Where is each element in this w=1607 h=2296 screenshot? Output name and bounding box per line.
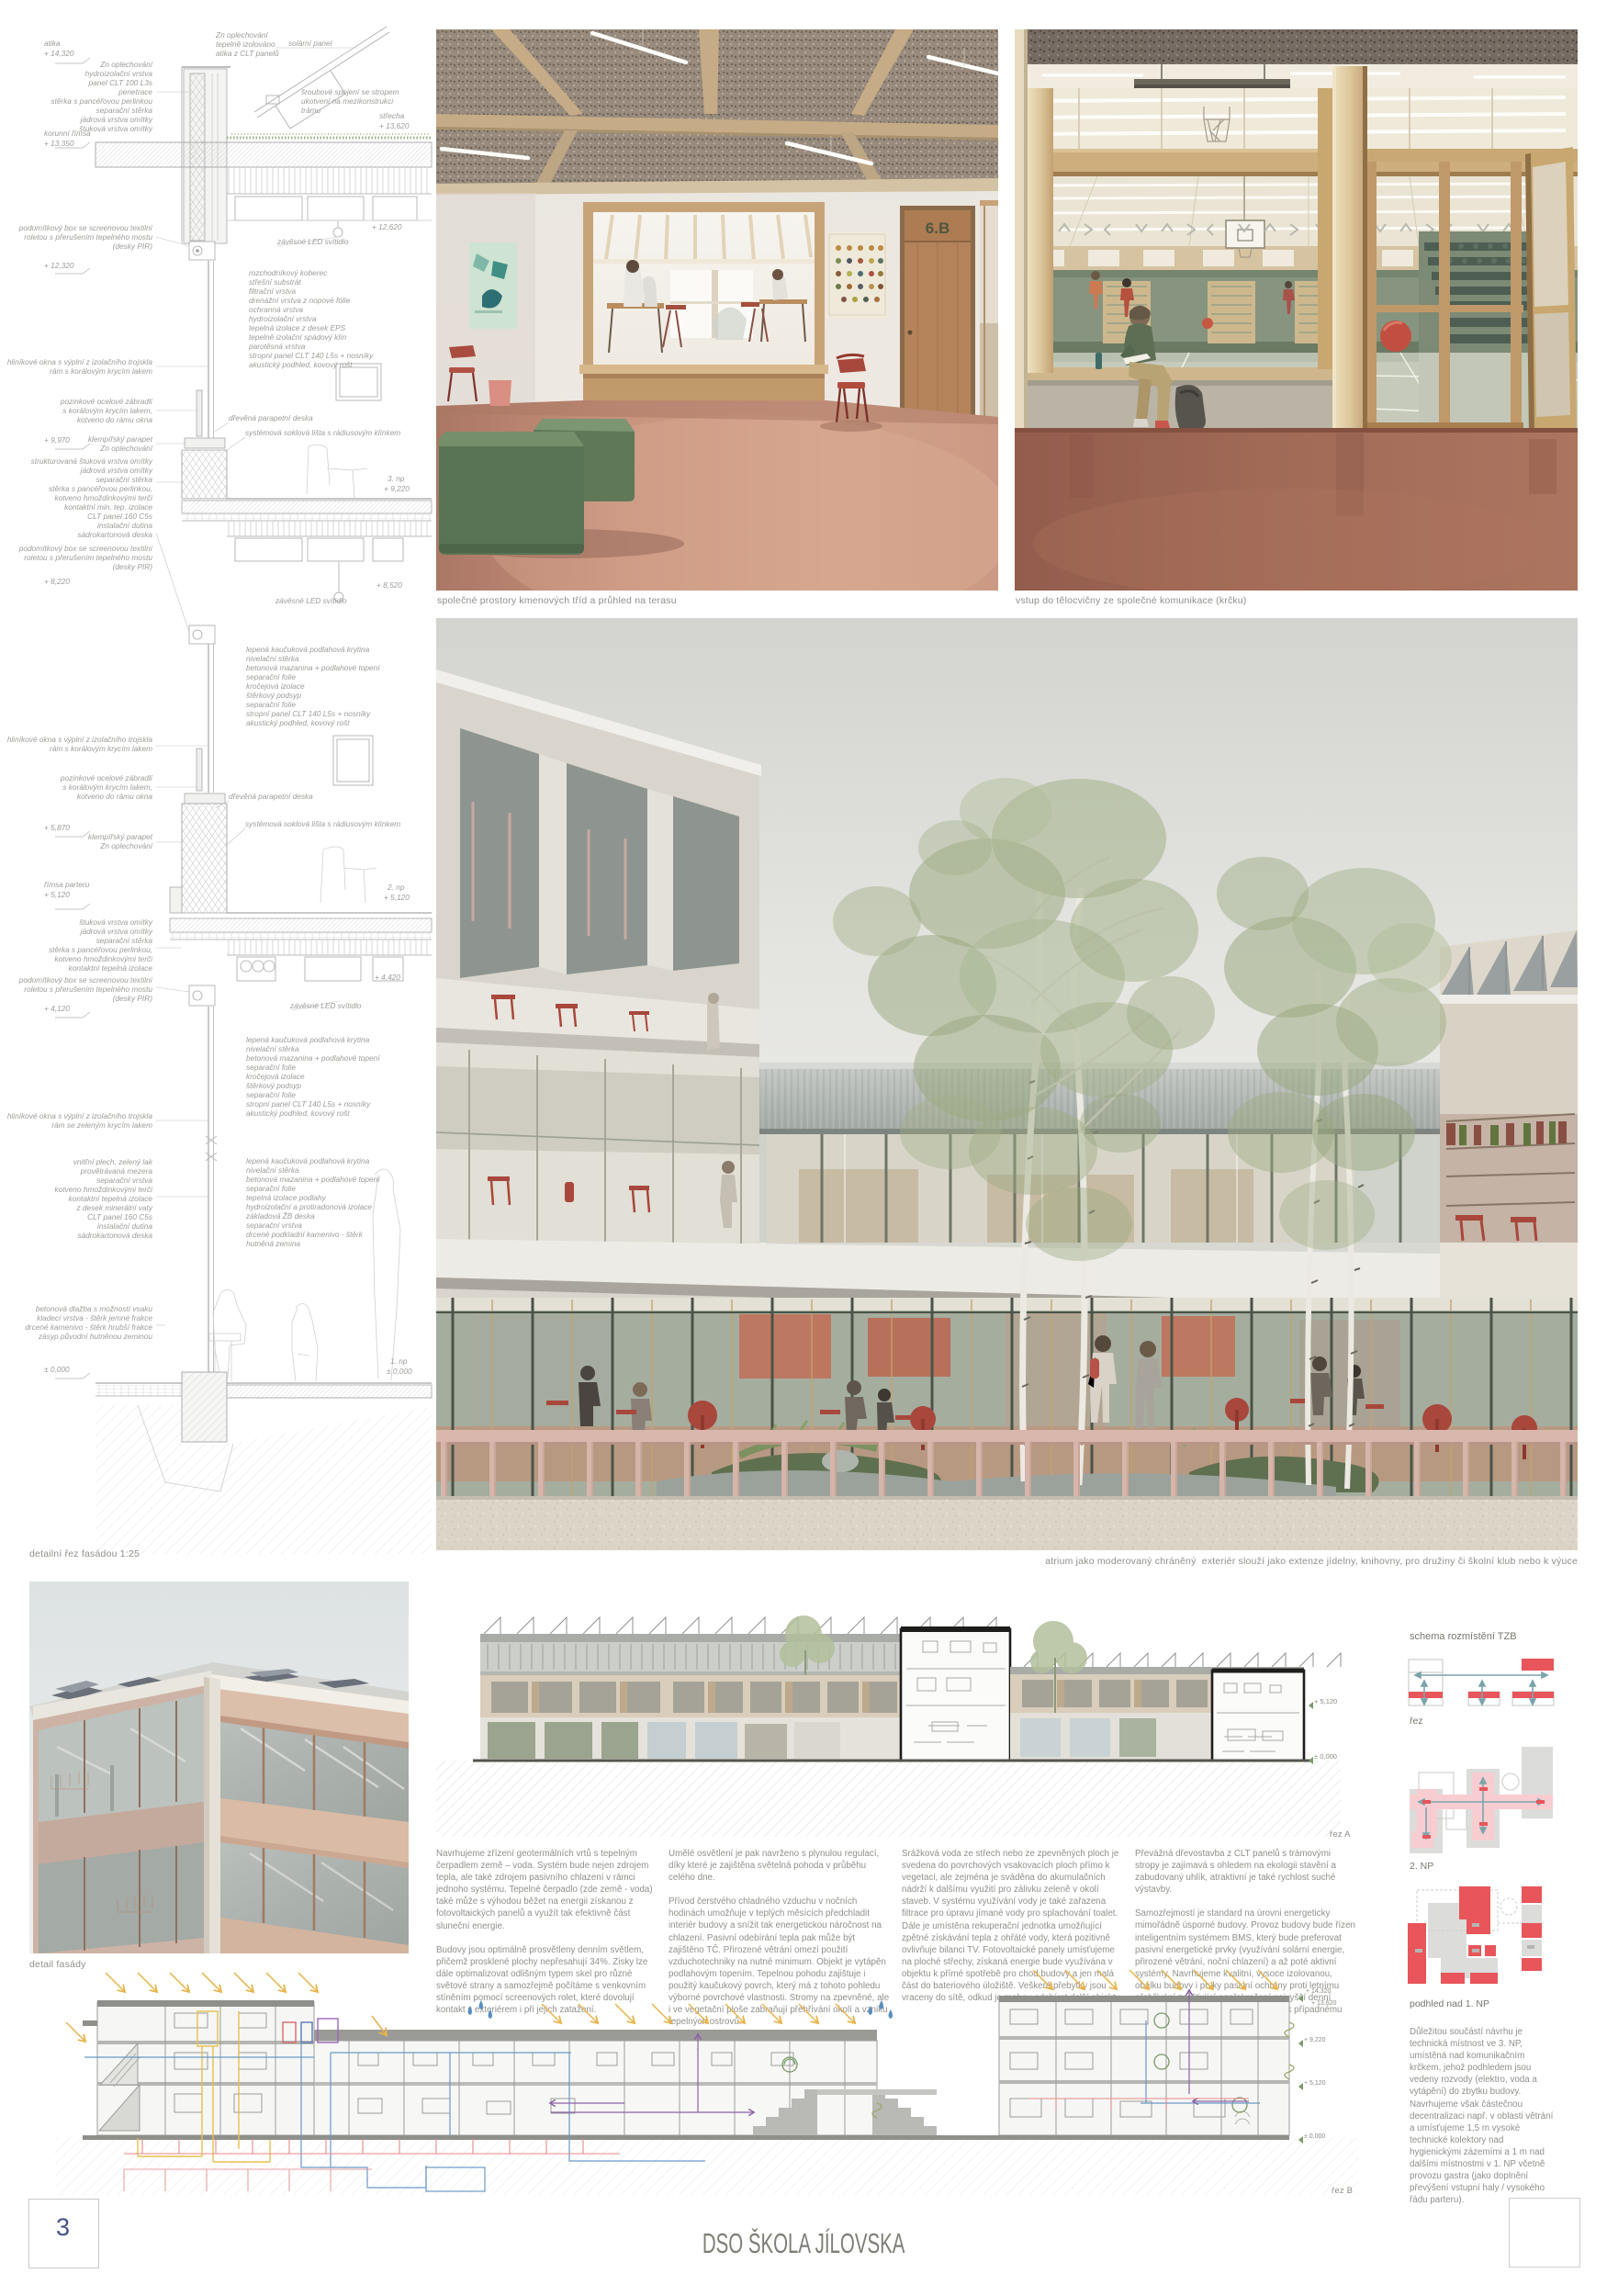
svg-text:pozinkové ocelové zábradlí: pozinkové ocelové zábradlí xyxy=(60,397,153,406)
svg-text:hliníkové okna s výplní z izol: hliníkové okna s výplní z izolačního tro… xyxy=(7,1111,153,1120)
svg-text:systémová soklová lišta s rádi: systémová soklová lišta s rádiusovým klí… xyxy=(245,428,400,437)
svg-text:Zn oplechování: Zn oplechování xyxy=(215,30,268,39)
svg-text:roletou s přerušením tepelného: roletou s přerušením tepelného mostu xyxy=(24,232,152,242)
svg-text:6.B: 6.B xyxy=(926,219,950,237)
svg-text:separační vrstva: separační vrstva xyxy=(96,1176,152,1185)
svg-text:betonová dlažba s možností vsa: betonová dlažba s možností vsaku xyxy=(36,1304,153,1313)
svg-text:2. np: 2. np xyxy=(387,883,405,892)
svg-text:roletou s přerušením tepelného: roletou s přerušením tepelného mostu xyxy=(24,553,152,562)
svg-text:rám s korálovým krycím lakem: rám s korálovým krycím lakem xyxy=(50,366,152,376)
svg-text:klempířský parapet: klempířský parapet xyxy=(88,434,153,444)
svg-text:filtrační vrstva: filtrační vrstva xyxy=(249,287,297,296)
svg-text:kročejová izolace: kročejová izolace xyxy=(246,681,305,691)
svg-text:systémová soklová lišta s rádi: systémová soklová lišta s rádiusovým klí… xyxy=(245,819,400,828)
svg-text:nivelační stěrka: nivelační stěrka xyxy=(246,1044,299,1053)
svg-text:hutněná zemina: hutněná zemina xyxy=(246,1239,300,1248)
svg-text:vnitřní plech, zelený lak: vnitřní plech, zelený lak xyxy=(73,1157,153,1166)
svg-text:stěrka s pancéřovou perlinkou,: stěrka s pancéřovou perlinkou, xyxy=(49,945,152,954)
svg-text:± 0,000: ± 0,000 xyxy=(44,1365,70,1374)
svg-text:+ 5,120: + 5,120 xyxy=(1314,1697,1337,1705)
svg-text:sádrokartonová deska: sádrokartonová deska xyxy=(77,1231,152,1240)
svg-text:+ 4,420: + 4,420 xyxy=(375,973,400,982)
svg-text:parotěsná vrstva: parotěsná vrstva xyxy=(248,342,306,351)
svg-text:CLT panel 160 C5s: CLT panel 160 C5s xyxy=(87,1212,152,1221)
svg-text:+ 9,220: + 9,220 xyxy=(1304,2037,1326,2043)
svg-text:rozchodníkový koberec: rozchodníkový koberec xyxy=(249,268,328,277)
svg-text:(desky PIR): (desky PIR) xyxy=(113,994,153,1003)
svg-text:+ 9,220: + 9,220 xyxy=(384,484,410,493)
svg-text:tepelná izolace podlahy: tepelná izolace podlahy xyxy=(246,1193,327,1202)
svg-text:1. np: 1. np xyxy=(390,1356,408,1366)
svg-text:akustický podhled, kovový rošt: akustický podhled, kovový rošt xyxy=(246,718,350,727)
svg-text:střešní substrát: střešní substrát xyxy=(249,277,301,287)
svg-text:separační folie: separační folie xyxy=(246,1184,296,1193)
svg-text:kontaktní tepelná izolace: kontaktní tepelná izolace xyxy=(69,1194,153,1203)
svg-text:provětrávaná mezera: provětrávaná mezera xyxy=(80,1166,153,1176)
svg-text:lepená kaučuková podlahová kry: lepená kaučuková podlahová krytina xyxy=(246,1156,370,1165)
svg-text:hydroizolační a protiradonová: hydroizolační a protiradonová izolace xyxy=(246,1202,372,1211)
svg-text:+ 13,620: + 13,620 xyxy=(379,121,410,130)
svg-text:ukotvení na mezikonstrukci: ukotvení na mezikonstrukci xyxy=(301,96,394,106)
svg-text:jádrová vrstva omítky: jádrová vrstva omítky xyxy=(80,927,153,936)
svg-text:kladecí vrstva - štěrk jemné f: kladecí vrstva - štěrk jemné frakce xyxy=(37,1313,152,1322)
svg-text:CLT panel 160 C5s: CLT panel 160 C5s xyxy=(87,512,152,521)
svg-text:stropní panel CLT 140 L5s + no: stropní panel CLT 140 L5s + nosníky xyxy=(246,1099,371,1109)
svg-text:+ 14,320: + 14,320 xyxy=(1306,1988,1332,1995)
svg-text:jádrová vrstva omítky: jádrová vrstva omítky xyxy=(80,466,153,475)
svg-text:roletou s přerušením tepelného: roletou s přerušením tepelného mostu xyxy=(24,985,152,994)
svg-text:tepelně izolováno: tepelně izolováno xyxy=(216,39,275,49)
svg-text:rám s korálovým krycím lakem: rám s korálovým krycím lakem xyxy=(50,744,152,753)
svg-text:podomítkový box se screenovou: podomítkový box se screenovou textilní xyxy=(18,544,153,553)
svg-text:korunní římsa: korunní římsa xyxy=(44,129,91,138)
svg-text:hliníkové okna s výplní z izol: hliníkové okna s výplní z izolačního tro… xyxy=(7,357,153,366)
svg-text:3. np: 3. np xyxy=(388,474,405,483)
svg-text:+ 5,120: + 5,120 xyxy=(44,890,70,899)
svg-text:penetrace: penetrace xyxy=(118,87,152,96)
svg-text:betonová mazanina + podlahové: betonová mazanina + podlahové topení xyxy=(246,1175,380,1184)
svg-text:šroubové spojení se stropem: šroubové spojení se stropem xyxy=(301,87,399,96)
svg-text:hliníkové okna s výplní z izol: hliníkové okna s výplní z izolačního tro… xyxy=(7,735,153,744)
svg-text:nivelační stěrka: nivelační stěrka xyxy=(246,654,299,663)
svg-text:římsa parteru: římsa parteru xyxy=(44,880,90,889)
svg-text:separační stěrka: separační stěrka xyxy=(96,106,153,115)
svg-text:štuková vrstva omítky: štuková vrstva omítky xyxy=(79,917,153,927)
svg-text:+ 5,120: + 5,120 xyxy=(384,893,410,902)
svg-text:klempířský parapet: klempířský parapet xyxy=(88,832,153,841)
svg-text:+ 9,970: + 9,970 xyxy=(44,435,70,445)
svg-text:+ 12,620: + 12,620 xyxy=(372,222,402,231)
svg-text:betonová mazanina + podlahové: betonová mazanina + podlahové topení xyxy=(246,663,380,672)
svg-text:dřevěná parapetní deska: dřevěná parapetní deska xyxy=(229,413,313,422)
svg-text:separační stěrka: separační stěrka xyxy=(96,475,153,484)
svg-text:tepelná izolace z desek EPS: tepelná izolace z desek EPS xyxy=(249,323,346,332)
svg-text:kontaktní min. tep. izolace: kontaktní min. tep. izolace xyxy=(64,502,152,512)
svg-text:lepená kaučuková podlahová kry: lepená kaučuková podlahová krytina xyxy=(246,645,370,654)
svg-text:kotveno do rámu okna: kotveno do rámu okna xyxy=(77,415,152,424)
svg-text:trámu: trámu xyxy=(301,106,321,115)
svg-text:stěrka s pancéřovou perlinkou,: stěrka s pancéřovou perlinkou, xyxy=(49,484,152,493)
svg-text:tepelně izolační spádový klín: tepelně izolační spádový klín xyxy=(249,332,346,342)
svg-text:jádrová vrstva omítky: jádrová vrstva omítky xyxy=(80,115,153,124)
svg-text:instalační dutina: instalační dutina xyxy=(97,1221,152,1231)
svg-text:s korálovým krycím lakem,: s korálovým krycím lakem, xyxy=(62,782,152,792)
svg-text:nivelační stěrka: nivelační stěrka xyxy=(246,1165,299,1175)
svg-text:kotveno hmoždinkovými terči: kotveno hmoždinkovými terči xyxy=(54,954,153,963)
svg-text:separační folie: separační folie xyxy=(246,1090,296,1099)
svg-text:závěsné LED svítidlo: závěsné LED svítidlo xyxy=(289,1001,362,1010)
svg-text:+ 12,320: + 12,320 xyxy=(44,261,74,270)
svg-text:drcené podkladní kamenivo - št: drcené podkladní kamenivo - štěrk xyxy=(246,1230,364,1239)
svg-text:z desek minerální vaty: z desek minerální vaty xyxy=(75,1203,152,1212)
svg-text:+ 13,620: + 13,620 xyxy=(1311,2000,1337,2007)
svg-text:závěsné LED svítidlo: závěsné LED svítidlo xyxy=(276,237,349,246)
svg-text:drcené kamenivo - štěrk hrubší: drcené kamenivo - štěrk hrubší frakce xyxy=(25,1322,152,1332)
svg-text:separační stěrka: separační stěrka xyxy=(96,936,153,945)
svg-text:závěsné LED svítidlo: závěsné LED svítidlo xyxy=(275,596,347,605)
svg-text:dřevěná parapetní deska: dřevěná parapetní deska xyxy=(229,792,313,801)
svg-text:s korálovým krycím lakem,: s korálovým krycím lakem, xyxy=(62,406,152,415)
svg-text:štěrkový podsyp: štěrkový podsyp xyxy=(246,691,301,700)
svg-text:Zn oplechování: Zn oplechování xyxy=(99,841,152,850)
svg-text:solární panel: solární panel xyxy=(288,39,333,48)
svg-text:stropní panel CLT 140 L5s + no: stropní panel CLT 140 L5s + nosníky xyxy=(249,351,374,360)
svg-text:separační folie: separační folie xyxy=(246,672,296,681)
svg-text:akustický podhled, kovový rošt: akustický podhled, kovový rošt xyxy=(246,1109,350,1118)
svg-text:+ 8,520: + 8,520 xyxy=(376,580,402,590)
svg-text:separační vrstva: separační vrstva xyxy=(246,1221,302,1230)
svg-text:střecha: střecha xyxy=(379,111,405,120)
svg-text:sádrokartonová deska: sádrokartonová deska xyxy=(77,530,152,539)
svg-text:+ 13,350: + 13,350 xyxy=(44,139,74,148)
svg-text:lepená kaučuková podlahová kry: lepená kaučuková podlahová krytina xyxy=(246,1035,370,1044)
svg-text:+ 5,120: + 5,120 xyxy=(1304,2080,1326,2087)
svg-text:(desky PIR): (desky PIR) xyxy=(113,242,153,251)
svg-text:+ 8,220: + 8,220 xyxy=(44,577,70,586)
svg-text:zásyp původní hutněnou zeminou: zásyp původní hutněnou zeminou xyxy=(38,1332,152,1341)
svg-text:separační folie: separační folie xyxy=(246,1063,296,1072)
svg-text:panel CLT 100 L3s: panel CLT 100 L3s xyxy=(88,78,153,87)
svg-text:stěrka s pancéřovou perlinkou: stěrka s pancéřovou perlinkou xyxy=(51,96,152,106)
svg-text:+ 14,320: + 14,320 xyxy=(44,49,74,58)
svg-text:kotveno hmoždinkovými terči: kotveno hmoždinkovými terči xyxy=(54,1185,153,1194)
svg-text:drenážní vrstva z nopové fólie: drenážní vrstva z nopové fólie xyxy=(249,296,351,305)
svg-text:atika: atika xyxy=(44,39,61,48)
svg-text:rám se zeleným krycím lakem: rám se zeleným krycím lakem xyxy=(51,1120,152,1130)
svg-text:podomítkový box se screenovou: podomítkový box se screenovou textilní xyxy=(18,223,153,232)
svg-text:betonová mazanina + podlahové: betonová mazanina + podlahové topení xyxy=(246,1053,380,1063)
svg-text:kročejová izolace: kročejová izolace xyxy=(246,1072,305,1081)
svg-text:± 0,000: ± 0,000 xyxy=(1304,2133,1325,2140)
svg-text:hydroizolační vrstva: hydroizolační vrstva xyxy=(85,69,153,78)
svg-text:(desky PIR): (desky PIR) xyxy=(113,562,153,571)
svg-text:stropní panel CLT 140 L5s + no: stropní panel CLT 140 L5s + nosníky xyxy=(246,709,371,718)
svg-text:hydroizolační vrstva: hydroizolační vrstva xyxy=(249,314,317,323)
svg-text:kotveno do rámu okna: kotveno do rámu okna xyxy=(77,792,152,801)
svg-text:kotveno hmoždinkovými terči: kotveno hmoždinkovými terči xyxy=(54,493,153,502)
svg-text:separační folie: separační folie xyxy=(246,700,296,709)
svg-text:+ 4,120: + 4,120 xyxy=(44,1004,70,1013)
svg-text:instalační dutina: instalační dutina xyxy=(97,521,152,530)
svg-text:kontaktní tepelná izolace: kontaktní tepelná izolace xyxy=(69,963,153,973)
svg-text:štěrkový podsyp: štěrkový podsyp xyxy=(246,1081,301,1090)
svg-text:akustický podhled, kovový rošt: akustický podhled, kovový rošt xyxy=(249,360,353,369)
svg-text:± 0,000: ± 0,000 xyxy=(387,1367,412,1376)
svg-text:základová ŽB deska: základová ŽB deska xyxy=(245,1211,315,1221)
svg-text:Zn oplechování: Zn oplechování xyxy=(99,60,152,69)
svg-text:strukturovaná štuková vrstva o: strukturovaná štuková vrstva omítky xyxy=(31,456,153,466)
svg-text:Zn oplechování: Zn oplechování xyxy=(99,444,152,453)
svg-text:podomítkový box se screenovou: podomítkový box se screenovou textilní xyxy=(18,975,153,985)
svg-text:atika z CLT panelů: atika z CLT panelů xyxy=(216,49,279,58)
svg-text:pozinkové ocelové zábradlí: pozinkové ocelové zábradlí xyxy=(60,773,153,782)
svg-text:ochranná vrstva: ochranná vrstva xyxy=(249,305,303,314)
svg-text:+ 5,870: + 5,870 xyxy=(44,823,70,832)
svg-text:± 0,000: ± 0,000 xyxy=(1314,1752,1337,1761)
